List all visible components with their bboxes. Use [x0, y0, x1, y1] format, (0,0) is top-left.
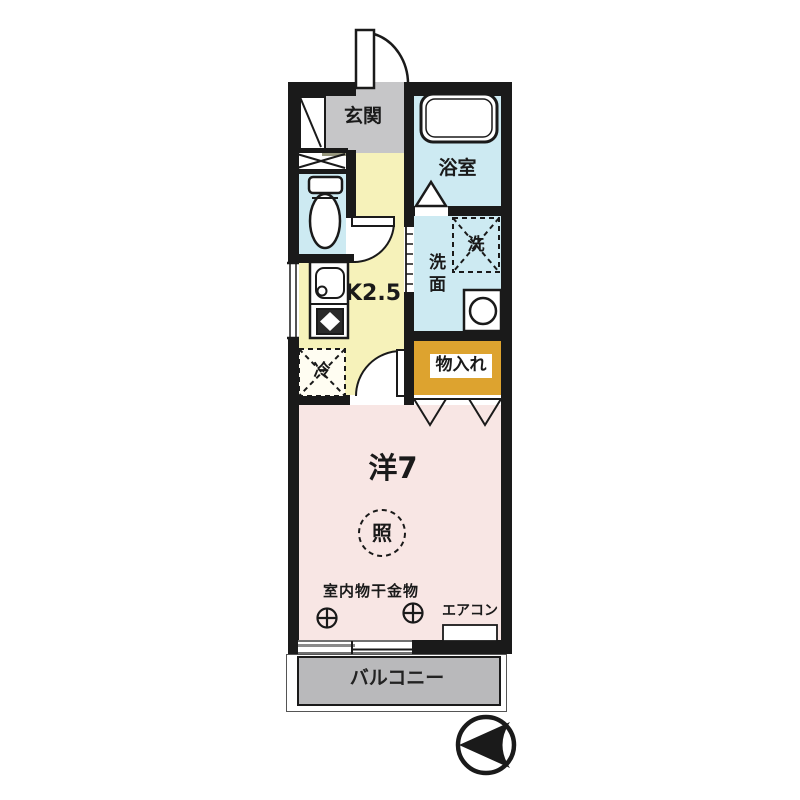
bath-label: 浴室	[414, 158, 501, 180]
closet-folding-doors	[414, 399, 501, 425]
shoe-cabinet-diagonal	[300, 97, 321, 147]
toilet-door	[352, 217, 394, 262]
entrance-door	[356, 30, 408, 88]
kitchen-label: K2.5	[343, 281, 403, 306]
balcony-label: バルコニー	[297, 668, 497, 690]
main-room-label: 洋7	[338, 452, 448, 485]
wash-basin	[464, 290, 501, 331]
shelf-x-pattern	[297, 154, 345, 168]
closet-label: 物入れ	[430, 354, 492, 378]
bath-door-triangle	[416, 182, 446, 206]
entrance-label: 玄関	[322, 106, 404, 128]
aircon-label: エアコン	[441, 603, 499, 619]
kitchen-room-door	[356, 350, 405, 396]
aircon-unit-box	[443, 625, 497, 641]
fridge-space-label: 冷	[309, 362, 335, 382]
sink-drain	[318, 287, 327, 296]
balcony-sliding-window	[298, 640, 412, 654]
washer-space-label: 洗	[453, 236, 499, 256]
laundry-hardware-label: 室内物干金物	[315, 583, 427, 600]
floor-plan: 玄関 浴室 洗 洗面 K2.5 冷 物入れ 洋7 照 室内物干金物 エアコン バ…	[0, 0, 800, 800]
north-arrow-icon	[458, 717, 514, 773]
door-swing-arc	[374, 34, 408, 86]
sliding-door-washroom	[404, 227, 414, 292]
bathtub	[421, 94, 497, 142]
washroom-label: 洗面	[428, 252, 447, 296]
kitchen-window	[287, 263, 299, 338]
toilet	[309, 177, 342, 248]
ceiling-light-label: 照	[370, 522, 394, 545]
laundry-hook-icons	[318, 604, 423, 628]
